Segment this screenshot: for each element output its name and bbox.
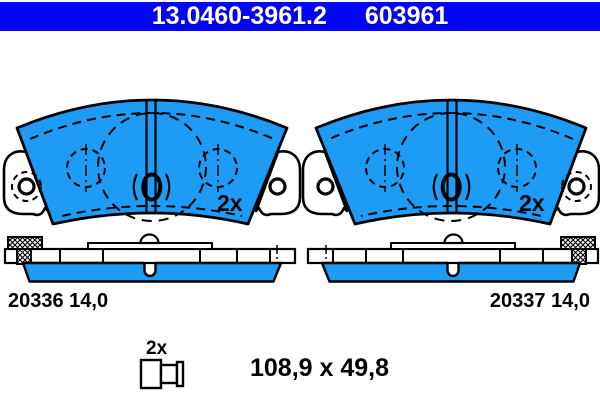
product-image: 13.0460-3961.2 603961 [0,0,600,400]
accessory-quantity-label: 2x [146,338,168,359]
guide-bushing-icon [141,360,183,388]
brake-pad-technical-drawing: 2x 2x 20336 14,0 20337 14,0 2x 108,9 x 4… [0,0,600,400]
left-pad-quantity-label: 2x [217,190,243,216]
left-pad-front-view [4,99,300,224]
right-pad-front-view [303,99,599,224]
left-pad-side-view [5,235,295,282]
right-pad-quantity-label: 2x [519,190,545,216]
right-pad-id-label: 20337 14,0 [490,290,590,312]
pad-dimensions-label: 108,9 x 49,8 [250,354,389,382]
left-pad-id-label: 20336 14,0 [8,290,108,312]
right-pad-side-view [308,235,598,282]
